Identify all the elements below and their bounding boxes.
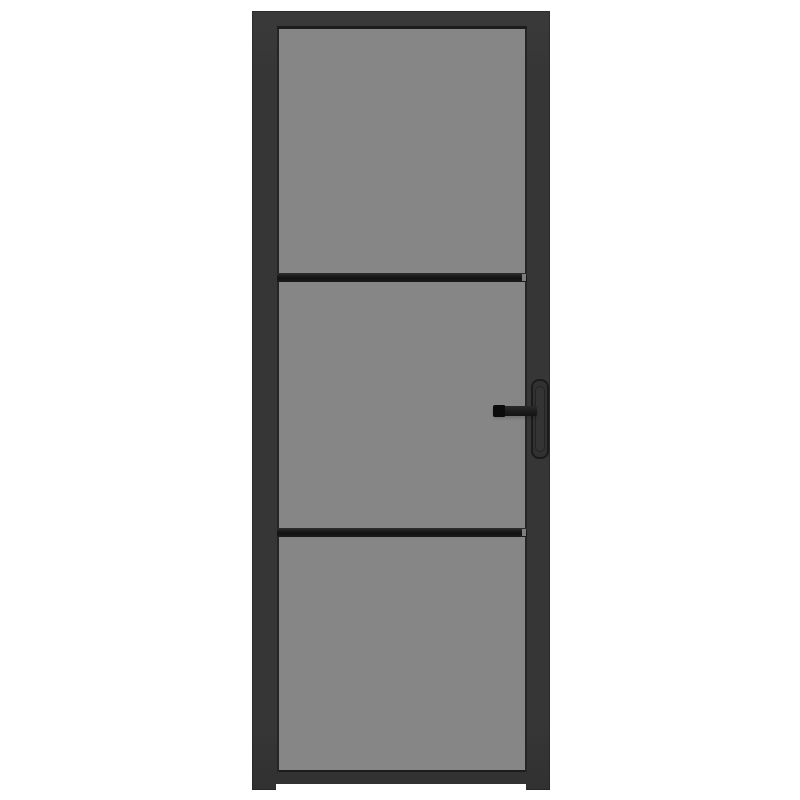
handle-backplate-inset — [535, 386, 545, 452]
glazing-bar-end-gap — [522, 529, 526, 536]
door-frame — [252, 11, 550, 790]
door-glass — [277, 26, 527, 772]
door-handle-lever-end-cap — [493, 405, 505, 417]
glazing-bar-lower — [277, 528, 527, 537]
handle-backplate — [531, 379, 549, 459]
glass-panel-middle — [277, 282, 527, 528]
glazing-bar-end-gap — [522, 274, 526, 281]
glazing-bar-upper — [277, 273, 527, 282]
bottom-clearance-notch — [276, 784, 526, 790]
glass-panel-top — [277, 26, 527, 273]
door-handle-lever — [493, 406, 537, 416]
product-image — [0, 0, 800, 800]
glass-panel-bottom — [277, 537, 527, 772]
